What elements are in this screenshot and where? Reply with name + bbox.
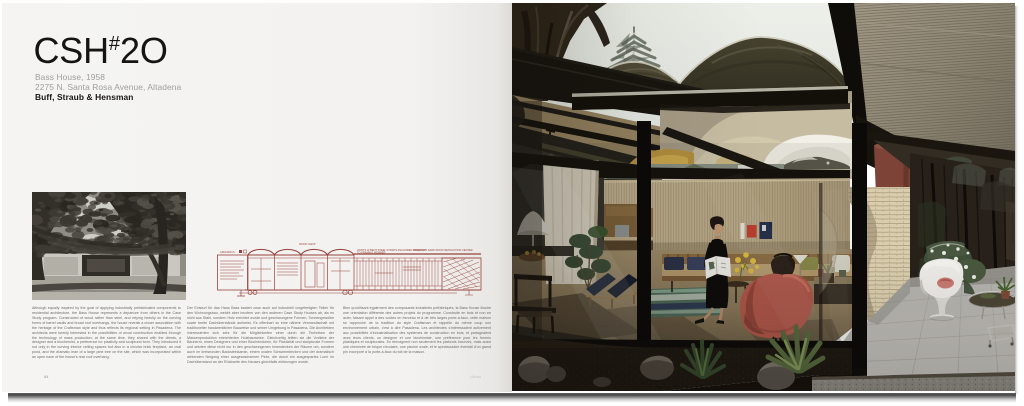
svg-text:ARCHWAYS: ARCHWAYS bbox=[220, 250, 235, 254]
svg-text:WOOD SHOP: WOOD SHOP bbox=[299, 242, 316, 246]
svg-text:STANDARD SAWN ROOF RESOLUTION: STANDARD SAWN ROOF RESOLUTION CENTER bbox=[413, 248, 473, 252]
svg-text:TO FRAMING MEMBER: TO FRAMING MEMBER bbox=[357, 251, 385, 255]
